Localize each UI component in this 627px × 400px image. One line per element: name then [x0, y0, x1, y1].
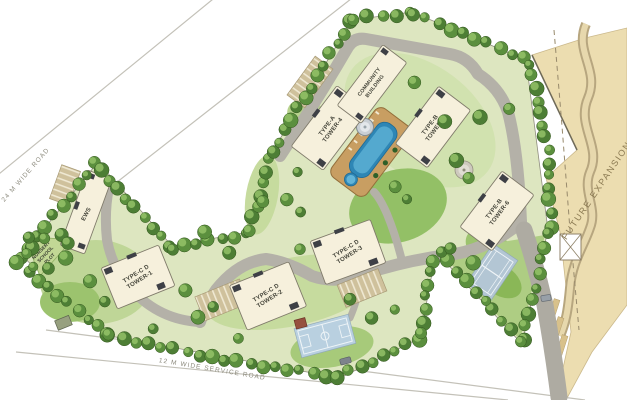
tree-icon [23, 232, 35, 244]
tree-icon [449, 153, 464, 168]
tree-icon [47, 209, 58, 220]
tree-icon [156, 231, 166, 241]
tree-icon [365, 312, 378, 325]
tree-icon [390, 9, 404, 23]
tree-icon [541, 192, 556, 207]
tree-icon [280, 193, 293, 206]
tree-icon [444, 23, 459, 38]
tree-icon [37, 220, 51, 234]
tree-icon [191, 310, 205, 324]
tree-icon [73, 178, 86, 191]
tree-icon [73, 304, 86, 317]
tree-icon [243, 225, 255, 237]
tree-icon [197, 225, 211, 239]
tree-icon [259, 166, 273, 180]
tree-icon [390, 305, 400, 315]
tree-icon [306, 83, 317, 94]
tree-icon [295, 244, 306, 255]
tree-icon [420, 12, 430, 22]
site-plan-page: FUTURE EXPANSION 24 M WIDE ROAD 12 M WID… [0, 0, 627, 400]
tree-icon [445, 243, 457, 255]
tree-icon [291, 101, 303, 113]
tree-icon [148, 324, 158, 334]
tree-icon [42, 262, 54, 274]
tree-icon [402, 194, 412, 204]
tree-icon [39, 233, 50, 244]
tree-icon [179, 284, 193, 298]
tree-icon [544, 170, 554, 180]
tree-icon [421, 279, 434, 292]
tree-icon [283, 113, 298, 128]
tree-icon [415, 327, 427, 339]
site-plan-svg: FUTURE EXPANSION 24 M WIDE ROAD 12 M WID… [0, 0, 627, 400]
tree-icon [9, 255, 24, 270]
tree-icon [534, 267, 547, 280]
tree-icon [342, 365, 353, 376]
tree-icon [425, 266, 435, 276]
tree-icon [127, 200, 141, 214]
tree-icon [407, 8, 420, 21]
tree-icon [532, 284, 542, 294]
tree-icon [246, 358, 257, 369]
tree-icon [457, 27, 469, 39]
tree-icon [368, 358, 378, 368]
tree-icon [344, 293, 356, 305]
tree-icon [389, 181, 401, 193]
tree-icon [504, 323, 518, 337]
tree-icon [142, 336, 156, 350]
tree-icon [229, 353, 243, 367]
tree-icon [473, 110, 488, 125]
tree-icon [22, 248, 32, 258]
tree-icon [399, 338, 411, 350]
tree-icon [155, 342, 165, 352]
tree-icon [99, 296, 110, 307]
tree-icon [222, 246, 236, 260]
tree-icon [295, 207, 305, 217]
tree-icon [507, 50, 517, 60]
tree-icon [228, 231, 241, 244]
tree-icon [535, 254, 545, 264]
tree-icon [503, 103, 515, 115]
tree-icon [543, 158, 556, 171]
tree-icon [208, 301, 219, 312]
tree-icon [525, 69, 537, 81]
tree-icon [322, 46, 335, 59]
tree-icon [218, 234, 228, 244]
tree-icon [205, 349, 220, 364]
tree-icon [537, 129, 551, 143]
tree-icon [62, 237, 75, 250]
tree-icon [140, 212, 150, 222]
tree-icon [466, 255, 481, 270]
tree-icon [83, 274, 97, 288]
tree-icon [463, 172, 475, 184]
tree-icon [330, 371, 344, 385]
tree-icon [546, 208, 558, 220]
tree-icon [190, 239, 201, 250]
tree-icon [177, 238, 191, 252]
tree-icon [470, 287, 482, 299]
tree-icon [183, 347, 193, 357]
tree-icon [347, 14, 359, 26]
tree-icon [66, 192, 76, 202]
tree-icon [318, 61, 328, 71]
tree-icon [467, 32, 481, 46]
tree-icon [257, 195, 269, 207]
tree-icon [533, 105, 547, 119]
tree-icon [408, 76, 421, 89]
tree-icon [270, 362, 280, 372]
tree-icon [451, 267, 463, 279]
tree-icon [58, 251, 73, 266]
tree-icon [257, 360, 271, 374]
tree-icon [494, 41, 508, 55]
tree-icon [359, 9, 373, 23]
tree-icon [543, 228, 554, 239]
tree-icon [420, 303, 432, 315]
tree-icon [110, 181, 124, 195]
tree-icon [377, 349, 390, 362]
tree-icon [496, 316, 506, 326]
tree-icon [481, 296, 491, 306]
tree-icon [480, 36, 491, 47]
tree-icon [390, 347, 400, 357]
tree-icon [233, 333, 243, 343]
tree-icon [378, 11, 389, 22]
tree-icon [356, 360, 370, 374]
tree-icon [515, 336, 526, 347]
tree-icon [420, 291, 430, 301]
tree-icon [43, 281, 54, 292]
tree-icon [544, 145, 554, 155]
tree-icon [524, 60, 534, 70]
tree-icon [218, 355, 230, 367]
tree-icon [438, 114, 452, 128]
tree-icon [131, 337, 142, 348]
tree-icon [117, 332, 131, 346]
tree-icon [526, 293, 538, 305]
car-icon [541, 294, 552, 301]
tree-icon [275, 138, 285, 148]
tree-icon [529, 81, 544, 96]
tree-icon [167, 244, 179, 256]
tree-icon [28, 262, 38, 272]
tree-icon [281, 364, 294, 377]
tree-icon [82, 170, 92, 180]
tree-icon [166, 341, 179, 354]
tree-icon [338, 28, 350, 40]
tree-icon [519, 319, 531, 331]
tree-icon [103, 329, 115, 341]
tree-icon [94, 163, 109, 178]
tree-icon [293, 167, 303, 177]
tree-icon [294, 365, 304, 375]
tree-icon [426, 255, 440, 269]
tree-icon [61, 296, 71, 306]
tree-icon [537, 241, 551, 255]
